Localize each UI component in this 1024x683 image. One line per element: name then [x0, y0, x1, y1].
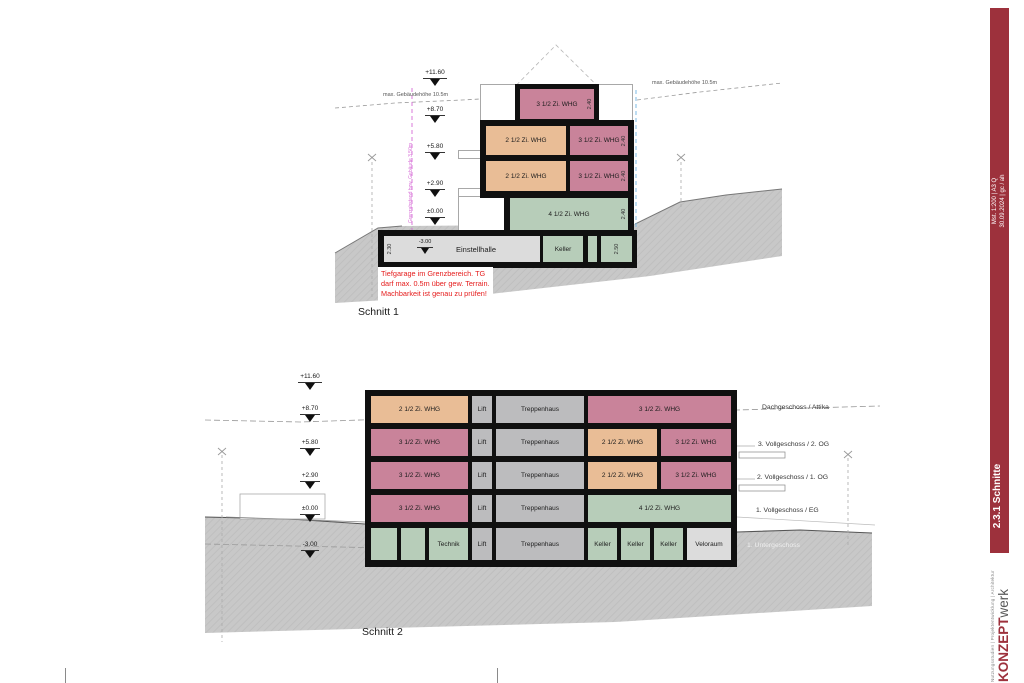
- elevation-triangle-icon: [430, 190, 440, 197]
- elevation-marker: +5.80: [415, 143, 455, 160]
- max-height-note-left: max. Gebäudehöhe 10.5m: [383, 92, 448, 98]
- elevation-triangle-icon: [421, 248, 429, 254]
- boundary-x-mark: [368, 154, 376, 161]
- cell-keller-narrow: [371, 528, 397, 560]
- boundary-x-mark: [218, 448, 226, 455]
- cell-25-whg: 2 1/2 Zi. WHG: [486, 161, 566, 191]
- building-structure: 2 1/2 Zi. WHG Lift Treppenhaus 3 1/2 Zi.…: [365, 390, 737, 567]
- section-schnitt-1: max. Gebäudehöhe 10.5m max. Gebäudehöhe …: [330, 40, 790, 330]
- unit-label: 3 1/2 Zi. WHG: [536, 101, 577, 108]
- annotation-line: Tiefgarage im Grenzbereich. TG: [381, 269, 490, 279]
- unit-label: 3 1/2 Zi. WHG: [639, 406, 680, 413]
- room-height-dim: 2.40: [621, 163, 627, 189]
- keller-height-dim: 2.50: [614, 236, 620, 262]
- cell-keller-narrow: [401, 528, 425, 560]
- max-height-line-left: [335, 99, 480, 108]
- unit-label: Treppenhaus: [521, 505, 559, 512]
- elevation-marker: +8.70: [415, 106, 455, 123]
- cell-25-whg: 2 1/2 Zi. WHG: [588, 462, 657, 489]
- elevation-marker: -3.00: [290, 541, 330, 558]
- cell-lift: Lift: [472, 396, 492, 423]
- elevation-triangle-icon: [430, 79, 440, 86]
- unit-label: Veloraum: [695, 541, 722, 548]
- elevation-label: +5.80: [300, 439, 320, 449]
- elevation-triangle-icon: [305, 551, 315, 558]
- cell-35-whg: 3 1/2 Zi. WHG: [661, 462, 731, 489]
- elevation-triangle-icon: [305, 415, 315, 422]
- fold-mark: [497, 668, 498, 683]
- brand-wordmark: KONZEPTwerk: [996, 589, 1011, 682]
- garage-height-dim: 2.30: [387, 236, 393, 262]
- cell-keller: Keller: [621, 528, 650, 560]
- boundary-x-mark: [677, 154, 685, 161]
- cell-keller-narrow: [588, 236, 597, 262]
- cell-treppenhaus: Treppenhaus: [496, 528, 584, 560]
- terrain-surface-right: [737, 530, 872, 533]
- cell-35-whg: 3 1/2 Zi. WHG: [371, 429, 468, 456]
- elevation-marker: ±0.00: [290, 505, 330, 522]
- terrain-surface-left: [205, 517, 365, 524]
- cell-35-whg: 3 1/2 Zi. WHG: [371, 462, 468, 489]
- unit-label: 3 1/2 Zi. WHG: [399, 505, 440, 512]
- cell-einstellhalle: 2.30 -3.00 Einstellhalle: [384, 236, 540, 262]
- cell-45-whg: 4 1/2 Zi. WHG 2.40: [510, 198, 628, 230]
- fold-mark: [65, 668, 66, 683]
- floor-label: Dachgeschoss / Attika: [762, 404, 829, 411]
- cell-25-whg: 2 1/2 Zi. WHG: [371, 396, 468, 423]
- cell-35-whg: 3 1/2 Zi. WHG 2.40: [520, 89, 594, 119]
- elevation-marker: +2.90: [290, 472, 330, 489]
- max-height-note-right: max. Gebäudehöhe 10.5m: [652, 80, 717, 86]
- cell-25-whg: 2 1/2 Zi. WHG: [588, 429, 657, 456]
- unit-label: 2 1/2 Zi. WHG: [399, 406, 440, 413]
- elevation-marker: +2.90: [415, 180, 455, 197]
- sheet-meta: Mst. 1:200 | A3 Q 30.09.2024 | gc / ah: [992, 158, 1008, 244]
- boundary-x-mark: [844, 451, 852, 458]
- terrain-surface-right: [635, 189, 782, 224]
- cell-35-whg: 3 1/2 Zi. WHG2.40: [570, 126, 628, 155]
- boundary-x-mark: [677, 154, 685, 161]
- cell-35-whg: 3 1/2 Zi. WHG: [661, 429, 731, 456]
- unit-label: Lift: [478, 439, 487, 446]
- elevation-triangle-icon: [430, 153, 440, 160]
- annotation-line: Machbarkeit ist genau zu prüfen!: [381, 289, 490, 299]
- elevation-marker: ±0.00: [415, 208, 455, 225]
- cell-treppenhaus: Treppenhaus: [496, 396, 584, 423]
- elevation-label: +8.70: [300, 405, 320, 415]
- cell-45-whg: 4 1/2 Zi. WHG: [588, 495, 731, 522]
- elevation-label: +8.70: [425, 106, 445, 116]
- annotation-line: darf max. 0.5m über gew. Terrain.: [381, 279, 490, 289]
- unit-label: 3 1/2 Zi. WHG: [399, 472, 440, 479]
- cell-lift: Lift: [472, 495, 492, 522]
- leader-line-eg: [737, 517, 875, 525]
- unit-label: 3 1/2 Zi. WHG: [399, 439, 440, 446]
- cell-lift: Lift: [472, 528, 492, 560]
- elevation-marker: +8.70: [290, 405, 330, 422]
- balcony-slab: [739, 452, 785, 458]
- brand-light: werk: [996, 589, 1011, 618]
- cell-keller: Keller: [654, 528, 683, 560]
- cell-25-whg: 2 1/2 Zi. WHG: [486, 126, 566, 155]
- unit-label: Treppenhaus: [521, 541, 559, 548]
- elevation-label: ±0.00: [425, 208, 445, 218]
- unit-label: 4 1/2 Zi. WHG: [548, 211, 589, 218]
- unit-label: 2 1/2 Zi. WHG: [602, 472, 643, 479]
- cell-veloraum: Veloraum: [687, 528, 731, 560]
- elevation-label: ±0.00: [300, 505, 320, 515]
- elevation-triangle-icon: [305, 383, 315, 390]
- cell-treppenhaus: Treppenhaus: [496, 495, 584, 522]
- cell-technik: Technik: [429, 528, 468, 560]
- unit-label: 3 1/2 Zi. WHG: [675, 472, 716, 479]
- room-height-dim: 2.40: [587, 91, 593, 117]
- elevation-triangle-icon: [305, 449, 315, 456]
- unit-label: 3 1/2 Zi. WHG: [578, 137, 619, 144]
- cell-35-whg: 3 1/2 Zi. WHG2.40: [570, 161, 628, 191]
- cell-lift: Lift: [472, 462, 492, 489]
- cell-keller: Keller: [543, 236, 583, 262]
- unit-label: 3 1/2 Zi. WHG: [675, 439, 716, 446]
- elevation-marker: +11.60: [415, 69, 455, 86]
- unit-label: Keller: [627, 541, 644, 548]
- cell-treppenhaus: Treppenhaus: [496, 429, 584, 456]
- floor-label: 3. Vollgeschoss / 2. OG: [758, 441, 829, 448]
- floor-label: 1. Untergeschoss: [747, 542, 800, 549]
- unit-label: Treppenhaus: [521, 439, 559, 446]
- unit-label: 2 1/2 Zi. WHG: [505, 137, 546, 144]
- boundary-note-magenta: Grenzabstand bzw. Gebäude 3.50m: [408, 127, 414, 239]
- elevation-label: +11.60: [423, 69, 447, 79]
- elevation-label: +2.90: [425, 180, 445, 190]
- balcony-slab: [739, 485, 785, 491]
- elevation-marker: +11.60: [290, 373, 330, 390]
- cell-treppenhaus: Treppenhaus: [496, 462, 584, 489]
- cell-keller: Keller: [588, 528, 617, 560]
- elevation-label: +2.90: [300, 472, 320, 482]
- elevation-label: +5.80: [425, 143, 445, 153]
- cell-35-whg: 3 1/2 Zi. WHG: [371, 495, 468, 522]
- drawing-sheet: { "sidebar": { "scale_note": "Mst. 1:200…: [0, 0, 1024, 683]
- attika-floor-structure: 3 1/2 Zi. WHG 2.40: [515, 84, 599, 124]
- unit-label: Lift: [478, 406, 487, 413]
- room-height-dim: 2.40: [621, 201, 627, 227]
- basement-structure: 2.30 -3.00 Einstellhalle Keller 2.50: [378, 230, 637, 268]
- floor-label: 1. Vollgeschoss / EG: [756, 507, 819, 514]
- boundary-x-mark: [368, 154, 376, 161]
- elevation-marker: +5.80: [290, 439, 330, 456]
- unit-label: 4 1/2 Zi. WHG: [639, 505, 680, 512]
- brand-logo: Nutzungsstudien | Projektentwicklung | A…: [990, 550, 1014, 682]
- section-schnitt-2: +11.60 +8.70 +5.80 +2.90 ±0.00 -3.00 2 1…: [195, 360, 885, 650]
- unit-label: Keller: [555, 246, 572, 253]
- tiefgarage-annotation: Tiefgarage im Grenzbereich. TG darf max.…: [378, 267, 493, 302]
- elevation-label: -3.00: [301, 541, 320, 551]
- scale-note: Mst. 1:200 | A3 Q: [992, 158, 1000, 244]
- brand-tagline: Nutzungsstudien | Projektentwicklung | A…: [990, 550, 995, 682]
- unit-label: 2 1/2 Zi. WHG: [505, 173, 546, 180]
- date-note: 30.09.2024 | gc / ah: [1000, 158, 1008, 244]
- unit-label: Einstellhalle: [456, 245, 496, 254]
- elevation-triangle-icon: [305, 482, 315, 489]
- unit-label: Keller: [594, 541, 611, 548]
- elevation-triangle-icon: [430, 116, 440, 123]
- section-title: Schnitt 2: [362, 626, 403, 638]
- unit-label: Treppenhaus: [521, 406, 559, 413]
- cell-keller-narrow: 2.50: [601, 236, 632, 262]
- sheet-title: 2.3.1 Schnitte: [992, 441, 1006, 551]
- elevation-label: +11.60: [298, 373, 322, 383]
- unit-label: 3 1/2 Zi. WHG: [578, 173, 619, 180]
- boundary-x-mark: [844, 451, 852, 458]
- room-height-dim: 2.40: [621, 128, 627, 154]
- unit-label: 2 1/2 Zi. WHG: [602, 439, 643, 446]
- cell-35-whg: 3 1/2 Zi. WHG: [588, 396, 731, 423]
- unit-label: Treppenhaus: [521, 472, 559, 479]
- floor-label: 2. Vollgeschoss / 1. OG: [757, 474, 828, 481]
- elevation-triangle-icon: [430, 218, 440, 225]
- boundary-x-mark: [218, 448, 226, 455]
- unit-label: Technik: [437, 541, 459, 548]
- elevation-label: -3.00: [417, 239, 434, 248]
- cell-lift: Lift: [472, 429, 492, 456]
- upper-floors-structure: 2 1/2 Zi. WHG 3 1/2 Zi. WHG2.40 2 1/2 Zi…: [480, 120, 634, 198]
- section-title: Schnitt 1: [358, 306, 399, 318]
- brand-bold: KONZEPT: [996, 617, 1011, 682]
- elevation-triangle-icon: [305, 515, 315, 522]
- unit-label: Lift: [478, 472, 487, 479]
- unit-label: Lift: [478, 505, 487, 512]
- elevation-marker-basement: -3.00: [410, 239, 440, 254]
- unit-label: Lift: [478, 541, 487, 548]
- unit-label: Keller: [660, 541, 677, 548]
